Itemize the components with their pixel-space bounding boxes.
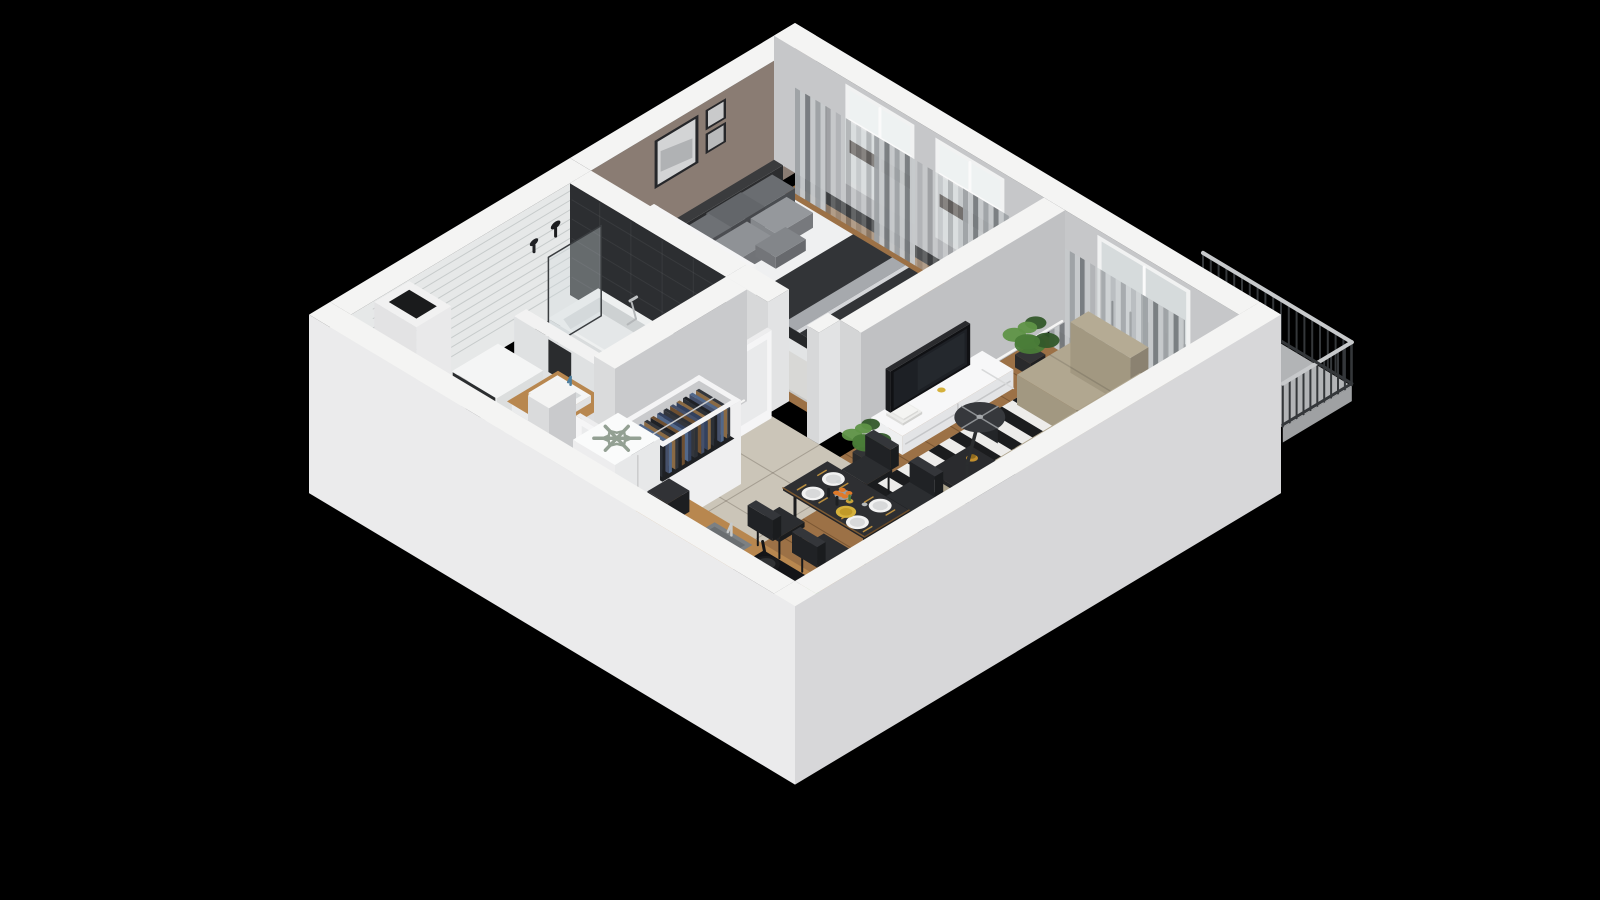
floorplan-scene: 3D isometric cutaway floor plan renderin… [0,0,1600,900]
floorplan-stage: 3D isometric cutaway floor plan renderin… [0,0,1600,900]
exterior-wall-south-corner [774,581,816,785]
